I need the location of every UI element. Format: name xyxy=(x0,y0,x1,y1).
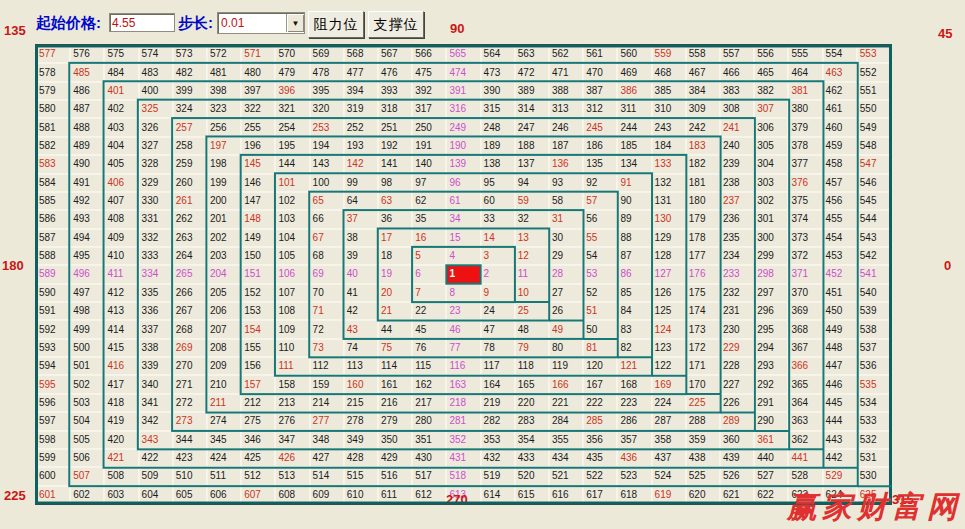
gann-cell[interactable]: 252 xyxy=(344,118,378,136)
gann-cell[interactable]: 444 xyxy=(823,412,857,430)
gann-cell[interactable]: 315 xyxy=(481,100,515,118)
gann-cell[interactable]: 124 xyxy=(652,320,686,338)
gann-cell[interactable]: 378 xyxy=(788,137,822,155)
gann-cell[interactable]: 71 xyxy=(310,302,344,320)
gann-cell[interactable]: 127 xyxy=(652,265,686,283)
gann-cell[interactable]: 591 xyxy=(36,302,70,320)
gann-cell[interactable]: 152 xyxy=(241,284,275,302)
gann-cell[interactable]: 313 xyxy=(549,100,583,118)
gann-cell[interactable]: 383 xyxy=(720,82,754,100)
gann-cell[interactable]: 81 xyxy=(583,339,617,357)
gann-cell[interactable]: 566 xyxy=(412,45,446,63)
gann-cell[interactable]: 76 xyxy=(412,339,446,357)
gann-cell[interactable]: 393 xyxy=(378,82,412,100)
gann-cell[interactable]: 351 xyxy=(412,431,446,449)
gann-cell[interactable]: 425 xyxy=(241,449,275,467)
gann-cell[interactable]: 427 xyxy=(310,449,344,467)
gann-cell[interactable]: 438 xyxy=(686,449,720,467)
gann-cell[interactable]: 538 xyxy=(857,320,891,338)
gann-cell[interactable]: 59 xyxy=(515,192,549,210)
gann-cell[interactable]: 186 xyxy=(583,137,617,155)
gann-cell[interactable]: 574 xyxy=(139,45,173,63)
gann-cell[interactable]: 542 xyxy=(857,247,891,265)
gann-cell[interactable]: 404 xyxy=(104,137,138,155)
gann-cell[interactable]: 365 xyxy=(788,375,822,393)
gann-cell[interactable]: 215 xyxy=(344,394,378,412)
gann-cell[interactable]: 341 xyxy=(139,394,173,412)
gann-cell[interactable]: 117 xyxy=(481,357,515,375)
gann-cell[interactable]: 605 xyxy=(173,486,207,504)
gann-cell[interactable]: 115 xyxy=(412,357,446,375)
gann-cell[interactable]: 283 xyxy=(515,412,549,430)
gann-cell[interactable]: 400 xyxy=(139,82,173,100)
gann-cell[interactable]: 210 xyxy=(207,375,241,393)
gann-cell[interactable]: 132 xyxy=(652,174,686,192)
gann-cell[interactable]: 171 xyxy=(686,357,720,375)
gann-cell[interactable]: 337 xyxy=(139,320,173,338)
gann-cell[interactable]: 534 xyxy=(857,394,891,412)
resistance-button[interactable]: 阻力位 xyxy=(308,11,364,38)
gann-cell[interactable]: 615 xyxy=(515,486,549,504)
gann-cell[interactable]: 159 xyxy=(310,375,344,393)
gann-cell[interactable]: 108 xyxy=(275,302,309,320)
gann-cell[interactable]: 418 xyxy=(104,394,138,412)
gann-cell[interactable]: 587 xyxy=(36,229,70,247)
gann-cell[interactable]: 221 xyxy=(549,394,583,412)
gann-cell[interactable]: 73 xyxy=(310,339,344,357)
gann-cell[interactable]: 539 xyxy=(857,302,891,320)
gann-cell[interactable]: 82 xyxy=(617,339,651,357)
gann-cell[interactable]: 520 xyxy=(515,467,549,485)
gann-cell[interactable]: 160 xyxy=(344,375,378,393)
gann-cell[interactable]: 554 xyxy=(823,45,857,63)
gann-cell[interactable]: 129 xyxy=(652,229,686,247)
gann-cell[interactable]: 145 xyxy=(241,155,275,173)
gann-cell[interactable]: 480 xyxy=(241,63,275,81)
gann-cell[interactable]: 528 xyxy=(788,467,822,485)
gann-cell[interactable]: 533 xyxy=(857,412,891,430)
gann-cell[interactable]: 332 xyxy=(139,229,173,247)
gann-cell[interactable]: 2 xyxy=(481,265,515,283)
gann-cell[interactable]: 330 xyxy=(139,192,173,210)
gann-cell[interactable]: 558 xyxy=(686,45,720,63)
gann-cell[interactable]: 203 xyxy=(207,247,241,265)
gann-cell[interactable]: 265 xyxy=(173,265,207,283)
gann-cell[interactable]: 318 xyxy=(378,100,412,118)
gann-cell[interactable]: 479 xyxy=(275,63,309,81)
gann-cell[interactable]: 443 xyxy=(823,431,857,449)
gann-cell[interactable]: 173 xyxy=(686,320,720,338)
gann-cell[interactable]: 532 xyxy=(857,431,891,449)
gann-cell[interactable]: 91 xyxy=(617,174,651,192)
gann-cell[interactable]: 194 xyxy=(310,137,344,155)
gann-cell[interactable]: 120 xyxy=(583,357,617,375)
gann-cell[interactable]: 612 xyxy=(412,486,446,504)
gann-cell[interactable]: 405 xyxy=(104,155,138,173)
gann-cell[interactable]: 468 xyxy=(652,63,686,81)
gann-cell[interactable]: 190 xyxy=(446,137,480,155)
gann-cell[interactable]: 356 xyxy=(583,431,617,449)
gann-cell[interactable]: 473 xyxy=(481,63,515,81)
gann-cell[interactable]: 522 xyxy=(583,467,617,485)
gann-cell[interactable]: 311 xyxy=(617,100,651,118)
gann-cell[interactable]: 17 xyxy=(378,229,412,247)
gann-cell[interactable]: 170 xyxy=(686,375,720,393)
gann-cell[interactable]: 88 xyxy=(617,229,651,247)
gann-cell[interactable]: 292 xyxy=(754,375,788,393)
gann-cell[interactable]: 492 xyxy=(70,192,104,210)
gann-cell[interactable]: 503 xyxy=(70,394,104,412)
gann-cell[interactable]: 428 xyxy=(344,449,378,467)
gann-cell[interactable]: 505 xyxy=(70,431,104,449)
gann-cell[interactable]: 264 xyxy=(173,247,207,265)
gann-cell[interactable]: 375 xyxy=(788,192,822,210)
gann-cell[interactable]: 11 xyxy=(515,265,549,283)
gann-cell[interactable]: 472 xyxy=(515,63,549,81)
gann-cell[interactable]: 603 xyxy=(104,486,138,504)
gann-cell[interactable]: 391 xyxy=(446,82,480,100)
gann-cell[interactable]: 10 xyxy=(515,284,549,302)
gann-cell[interactable]: 207 xyxy=(207,320,241,338)
gann-cell[interactable]: 590 xyxy=(36,284,70,302)
gann-cell[interactable]: 58 xyxy=(549,192,583,210)
gann-cell[interactable]: 602 xyxy=(70,486,104,504)
gann-cell[interactable]: 535 xyxy=(857,375,891,393)
gann-cell[interactable]: 362 xyxy=(788,431,822,449)
gann-cell[interactable]: 600 xyxy=(36,467,70,485)
gann-cell[interactable]: 271 xyxy=(173,375,207,393)
gann-cell[interactable]: 262 xyxy=(173,210,207,228)
gann-cell[interactable]: 580 xyxy=(36,100,70,118)
gann-cell[interactable]: 328 xyxy=(139,155,173,173)
gann-cell[interactable]: 31 xyxy=(549,210,583,228)
gann-cell[interactable]: 32 xyxy=(515,210,549,228)
gann-cell[interactable]: 611 xyxy=(378,486,412,504)
gann-cell[interactable]: 222 xyxy=(583,394,617,412)
gann-cell[interactable]: 461 xyxy=(823,100,857,118)
gann-cell[interactable]: 452 xyxy=(823,265,857,283)
gann-cell[interactable]: 604 xyxy=(139,486,173,504)
gann-cell[interactable]: 287 xyxy=(652,412,686,430)
gann-cell[interactable]: 66 xyxy=(310,210,344,228)
gann-cell[interactable]: 302 xyxy=(754,192,788,210)
gann-cell[interactable]: 79 xyxy=(515,339,549,357)
gann-cell[interactable]: 294 xyxy=(754,339,788,357)
gann-cell[interactable]: 55 xyxy=(583,229,617,247)
gann-cell[interactable]: 471 xyxy=(549,63,583,81)
gann-cell[interactable]: 546 xyxy=(857,174,891,192)
gann-cell[interactable]: 437 xyxy=(652,449,686,467)
gann-cell[interactable]: 345 xyxy=(207,431,241,449)
gann-cell[interactable]: 607 xyxy=(241,486,275,504)
gann-cell[interactable]: 27 xyxy=(549,284,583,302)
gann-cell[interactable]: 231 xyxy=(720,302,754,320)
gann-cell[interactable]: 402 xyxy=(104,100,138,118)
gann-cell[interactable]: 126 xyxy=(652,284,686,302)
gann-cell[interactable]: 184 xyxy=(652,137,686,155)
gann-cell[interactable]: 153 xyxy=(241,302,275,320)
gann-cell[interactable]: 181 xyxy=(686,174,720,192)
gann-cell[interactable]: 94 xyxy=(515,174,549,192)
gann-cell[interactable]: 24 xyxy=(481,302,515,320)
gann-cell[interactable]: 476 xyxy=(378,63,412,81)
gann-cell[interactable]: 164 xyxy=(481,375,515,393)
gann-cell[interactable]: 545 xyxy=(857,192,891,210)
gann-cell[interactable]: 235 xyxy=(720,229,754,247)
gann-cell[interactable]: 63 xyxy=(378,192,412,210)
gann-cell[interactable]: 281 xyxy=(446,412,480,430)
gann-cell[interactable]: 553 xyxy=(857,45,891,63)
gann-cell[interactable]: 456 xyxy=(823,192,857,210)
gann-cell[interactable]: 339 xyxy=(139,357,173,375)
gann-cell[interactable]: 279 xyxy=(378,412,412,430)
gann-cell[interactable]: 267 xyxy=(173,302,207,320)
gann-cell[interactable]: 384 xyxy=(686,82,720,100)
gann-cell[interactable]: 464 xyxy=(788,63,822,81)
gann-cell[interactable]: 557 xyxy=(720,45,754,63)
gann-cell[interactable]: 14 xyxy=(481,229,515,247)
gann-cell[interactable]: 478 xyxy=(310,63,344,81)
gann-cell[interactable]: 191 xyxy=(412,137,446,155)
gann-cell[interactable]: 594 xyxy=(36,357,70,375)
gann-cell[interactable]: 323 xyxy=(207,100,241,118)
gann-cell[interactable]: 119 xyxy=(549,357,583,375)
gann-cell[interactable]: 290 xyxy=(754,412,788,430)
gann-cell[interactable]: 239 xyxy=(720,155,754,173)
gann-cell[interactable]: 104 xyxy=(275,229,309,247)
gann-cell[interactable]: 270 xyxy=(173,357,207,375)
gann-cell[interactable]: 616 xyxy=(549,486,583,504)
gann-cell[interactable]: 484 xyxy=(104,63,138,81)
gann-cell[interactable]: 321 xyxy=(275,100,309,118)
gann-cell[interactable]: 167 xyxy=(583,375,617,393)
gann-cell[interactable]: 467 xyxy=(686,63,720,81)
gann-cell[interactable]: 595 xyxy=(36,375,70,393)
gann-cell[interactable]: 329 xyxy=(139,174,173,192)
gann-cell[interactable]: 422 xyxy=(139,449,173,467)
gann-cell[interactable]: 247 xyxy=(515,118,549,136)
gann-cell[interactable]: 507 xyxy=(70,467,104,485)
gann-cell[interactable]: 511 xyxy=(207,467,241,485)
gann-cell[interactable]: 432 xyxy=(481,449,515,467)
gann-cell[interactable]: 30 xyxy=(549,229,583,247)
gann-cell[interactable]: 140 xyxy=(412,155,446,173)
gann-cell[interactable]: 560 xyxy=(617,45,651,63)
gann-cell[interactable]: 477 xyxy=(344,63,378,81)
gann-cell[interactable]: 502 xyxy=(70,375,104,393)
gann-cell[interactable]: 618 xyxy=(617,486,651,504)
gann-cell[interactable]: 374 xyxy=(788,210,822,228)
gann-cell[interactable]: 162 xyxy=(412,375,446,393)
gann-cell[interactable]: 189 xyxy=(481,137,515,155)
gann-cell[interactable]: 89 xyxy=(617,210,651,228)
gann-cell[interactable]: 410 xyxy=(104,247,138,265)
gann-cell[interactable]: 175 xyxy=(686,284,720,302)
gann-cell[interactable]: 488 xyxy=(70,118,104,136)
gann-cell[interactable]: 493 xyxy=(70,210,104,228)
gann-cell[interactable]: 622 xyxy=(754,486,788,504)
gann-cell[interactable]: 474 xyxy=(446,63,480,81)
gann-cell[interactable]: 588 xyxy=(36,247,70,265)
gann-cell[interactable]: 282 xyxy=(481,412,515,430)
gann-cell[interactable]: 433 xyxy=(515,449,549,467)
gann-cell[interactable]: 168 xyxy=(617,375,651,393)
gann-cell[interactable]: 352 xyxy=(446,431,480,449)
gann-cell[interactable]: 123 xyxy=(652,339,686,357)
gann-cell[interactable]: 389 xyxy=(515,82,549,100)
gann-cell[interactable]: 419 xyxy=(104,412,138,430)
gann-cell[interactable]: 246 xyxy=(549,118,583,136)
gann-cell[interactable]: 75 xyxy=(378,339,412,357)
gann-cell[interactable]: 220 xyxy=(515,394,549,412)
gann-cell[interactable]: 40 xyxy=(344,265,378,283)
gann-cell[interactable]: 495 xyxy=(70,247,104,265)
gann-cell[interactable]: 440 xyxy=(754,449,788,467)
gann-cell[interactable]: 515 xyxy=(344,467,378,485)
gann-cell[interactable]: 447 xyxy=(823,357,857,375)
gann-cell[interactable]: 93 xyxy=(549,174,583,192)
gann-cell[interactable]: 141 xyxy=(378,155,412,173)
gann-cell[interactable]: 547 xyxy=(857,155,891,173)
gann-cell[interactable]: 497 xyxy=(70,284,104,302)
gann-cell[interactable]: 306 xyxy=(754,118,788,136)
gann-cell[interactable]: 200 xyxy=(207,192,241,210)
gann-cell[interactable]: 110 xyxy=(275,339,309,357)
gann-cell[interactable]: 37 xyxy=(344,210,378,228)
gann-cell[interactable]: 139 xyxy=(446,155,480,173)
gann-cell[interactable]: 122 xyxy=(652,357,686,375)
gann-cell[interactable]: 597 xyxy=(36,412,70,430)
gann-cell-center[interactable]: 1 xyxy=(446,265,480,283)
gann-cell[interactable]: 381 xyxy=(788,82,822,100)
gann-cell[interactable]: 64 xyxy=(344,192,378,210)
gann-cell[interactable]: 439 xyxy=(720,449,754,467)
gann-cell[interactable]: 23 xyxy=(446,302,480,320)
gann-cell[interactable]: 569 xyxy=(310,45,344,63)
gann-cell[interactable]: 308 xyxy=(720,100,754,118)
gann-cell[interactable]: 411 xyxy=(104,265,138,283)
gann-cell[interactable]: 518 xyxy=(446,467,480,485)
gann-cell[interactable]: 353 xyxy=(481,431,515,449)
gann-cell[interactable]: 242 xyxy=(686,118,720,136)
gann-cell[interactable]: 485 xyxy=(70,63,104,81)
gann-cell[interactable]: 481 xyxy=(207,63,241,81)
gann-cell[interactable]: 327 xyxy=(139,137,173,155)
gann-cell[interactable]: 310 xyxy=(652,100,686,118)
gann-cell[interactable]: 333 xyxy=(139,247,173,265)
gann-cell[interactable]: 35 xyxy=(412,210,446,228)
gann-cell[interactable]: 229 xyxy=(720,339,754,357)
gann-cell[interactable]: 370 xyxy=(788,284,822,302)
gann-cell[interactable]: 336 xyxy=(139,302,173,320)
gann-cell[interactable]: 517 xyxy=(412,467,446,485)
gann-cell[interactable]: 510 xyxy=(173,467,207,485)
gann-cell[interactable]: 355 xyxy=(549,431,583,449)
gann-cell[interactable]: 392 xyxy=(412,82,446,100)
gann-cell[interactable]: 137 xyxy=(515,155,549,173)
gann-cell[interactable]: 19 xyxy=(378,265,412,283)
gann-cell[interactable]: 309 xyxy=(686,100,720,118)
gann-cell[interactable]: 125 xyxy=(652,302,686,320)
gann-cell[interactable]: 13 xyxy=(515,229,549,247)
gann-cell[interactable]: 379 xyxy=(788,118,822,136)
gann-cell[interactable]: 198 xyxy=(207,155,241,173)
gann-cell[interactable]: 470 xyxy=(583,63,617,81)
gann-cell[interactable]: 537 xyxy=(857,339,891,357)
gann-cell[interactable]: 182 xyxy=(686,155,720,173)
gann-cell[interactable]: 342 xyxy=(139,412,173,430)
gann-cell[interactable]: 146 xyxy=(241,174,275,192)
gann-cell[interactable]: 67 xyxy=(310,229,344,247)
gann-cell[interactable]: 524 xyxy=(652,467,686,485)
gann-cell[interactable]: 136 xyxy=(549,155,583,173)
gann-cell[interactable]: 41 xyxy=(344,284,378,302)
gann-cell[interactable]: 413 xyxy=(104,302,138,320)
gann-cell[interactable]: 445 xyxy=(823,394,857,412)
gann-cell[interactable]: 118 xyxy=(515,357,549,375)
gann-cell[interactable]: 396 xyxy=(275,82,309,100)
gann-cell[interactable]: 105 xyxy=(275,247,309,265)
gann-cell[interactable]: 206 xyxy=(207,302,241,320)
gann-cell[interactable]: 592 xyxy=(36,320,70,338)
gann-cell[interactable]: 548 xyxy=(857,137,891,155)
gann-cell[interactable]: 121 xyxy=(617,357,651,375)
step-combobox[interactable]: 0.01 ▼ xyxy=(217,12,305,34)
gann-cell[interactable]: 214 xyxy=(310,394,344,412)
gann-cell[interactable]: 599 xyxy=(36,449,70,467)
gann-cell[interactable]: 620 xyxy=(686,486,720,504)
gann-cell[interactable]: 514 xyxy=(310,467,344,485)
gann-cell[interactable]: 465 xyxy=(754,63,788,81)
gann-cell[interactable]: 238 xyxy=(720,174,754,192)
gann-cell[interactable]: 274 xyxy=(207,412,241,430)
gann-cell[interactable]: 261 xyxy=(173,192,207,210)
gann-cell[interactable]: 48 xyxy=(515,320,549,338)
gann-cell[interactable]: 150 xyxy=(241,247,275,265)
gann-cell[interactable]: 543 xyxy=(857,229,891,247)
gann-cell[interactable]: 462 xyxy=(823,82,857,100)
gann-cell[interactable]: 228 xyxy=(720,357,754,375)
gann-cell[interactable]: 449 xyxy=(823,320,857,338)
gann-cell[interactable]: 286 xyxy=(617,412,651,430)
gann-cell[interactable]: 555 xyxy=(788,45,822,63)
gann-cell[interactable]: 582 xyxy=(36,137,70,155)
gann-cell[interactable]: 397 xyxy=(241,82,275,100)
gann-cell[interactable]: 297 xyxy=(754,284,788,302)
gann-cell[interactable]: 556 xyxy=(754,45,788,63)
gann-cell[interactable]: 130 xyxy=(652,210,686,228)
gann-cell[interactable]: 584 xyxy=(36,174,70,192)
gann-cell[interactable]: 46 xyxy=(446,320,480,338)
gann-cell[interactable]: 187 xyxy=(549,137,583,155)
gann-cell[interactable]: 142 xyxy=(344,155,378,173)
gann-cell[interactable]: 368 xyxy=(788,320,822,338)
gann-cell[interactable]: 7 xyxy=(412,284,446,302)
gann-cell[interactable]: 112 xyxy=(310,357,344,375)
gann-cell[interactable]: 259 xyxy=(173,155,207,173)
gann-cell[interactable]: 179 xyxy=(686,210,720,228)
gann-cell[interactable]: 199 xyxy=(207,174,241,192)
gann-cell[interactable]: 448 xyxy=(823,339,857,357)
gann-cell[interactable]: 307 xyxy=(754,100,788,118)
gann-cell[interactable]: 230 xyxy=(720,320,754,338)
gann-cell[interactable]: 103 xyxy=(275,210,309,228)
gann-cell[interactable]: 188 xyxy=(515,137,549,155)
gann-cell[interactable]: 577 xyxy=(36,45,70,63)
gann-cell[interactable]: 454 xyxy=(823,229,857,247)
gann-cell[interactable]: 15 xyxy=(446,229,480,247)
gann-cell[interactable]: 62 xyxy=(412,192,446,210)
